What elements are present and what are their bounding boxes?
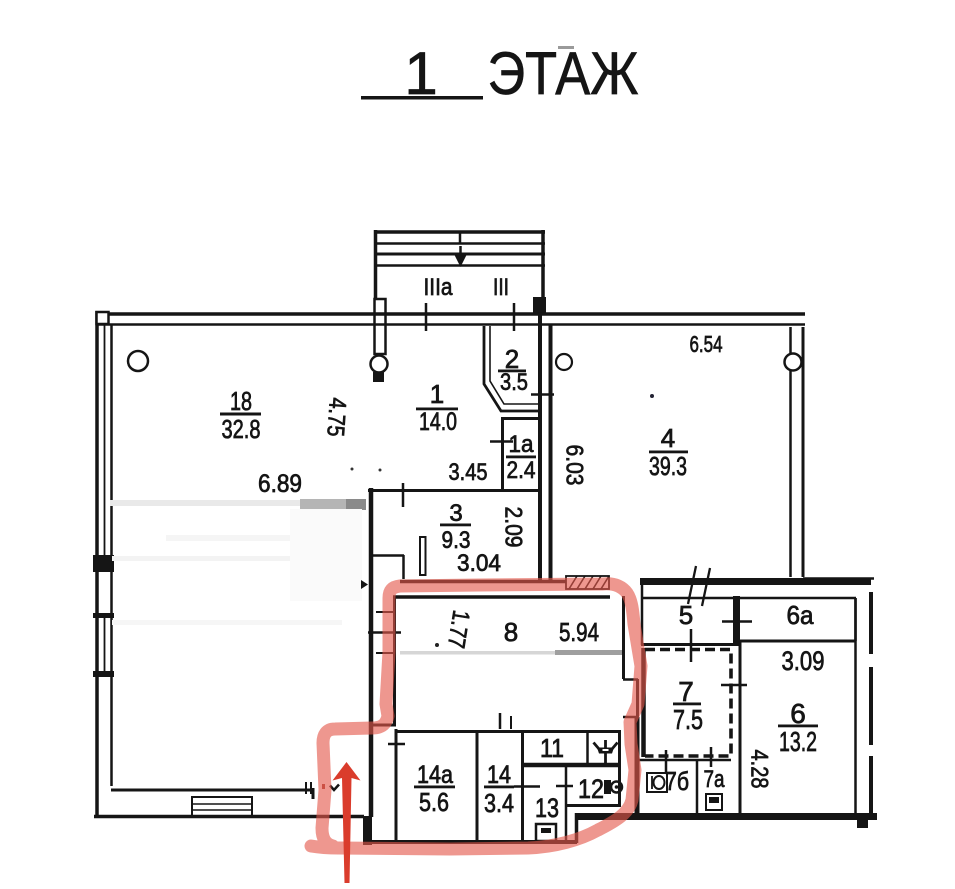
svg-text:IIIa: IIIa xyxy=(424,274,454,301)
svg-text:8: 8 xyxy=(504,617,518,647)
svg-text:7a: 7a xyxy=(704,766,726,793)
svg-text:4.28: 4.28 xyxy=(746,750,773,789)
svg-text:6.03: 6.03 xyxy=(561,445,588,486)
svg-text:6.54: 6.54 xyxy=(690,331,723,357)
svg-text:7.5: 7.5 xyxy=(673,704,703,735)
svg-text:13.2: 13.2 xyxy=(779,726,817,757)
svg-text:11: 11 xyxy=(540,733,564,763)
svg-text:3: 3 xyxy=(449,500,462,527)
svg-text:3.45: 3.45 xyxy=(449,459,488,486)
svg-text:6.89: 6.89 xyxy=(258,470,302,498)
svg-text:12: 12 xyxy=(578,774,604,804)
svg-text:13: 13 xyxy=(535,793,559,823)
svg-text:2.4: 2.4 xyxy=(507,457,536,484)
svg-text:III: III xyxy=(493,274,509,301)
svg-text:4.75: 4.75 xyxy=(321,397,351,438)
svg-text:3.09: 3.09 xyxy=(782,646,825,676)
svg-text:7б: 7б xyxy=(665,766,689,796)
svg-text:4: 4 xyxy=(661,423,675,453)
svg-text:7: 7 xyxy=(678,676,694,707)
svg-text:6: 6 xyxy=(790,698,806,729)
svg-text:39.3: 39.3 xyxy=(649,451,687,481)
svg-text:1a: 1a xyxy=(509,431,535,458)
svg-text:6a: 6a xyxy=(787,600,815,630)
svg-text:1: 1 xyxy=(430,379,444,409)
svg-text:3.5: 3.5 xyxy=(500,369,528,396)
svg-text:18: 18 xyxy=(230,386,252,416)
svg-text:14a: 14a xyxy=(417,761,453,789)
svg-text:14.0: 14.0 xyxy=(419,408,457,436)
svg-text:5.6: 5.6 xyxy=(419,787,449,817)
svg-text:5.94: 5.94 xyxy=(559,617,599,647)
svg-text:2.09: 2.09 xyxy=(500,507,527,548)
svg-text:3.04: 3.04 xyxy=(457,550,501,577)
svg-text:3.4: 3.4 xyxy=(484,788,514,818)
svg-text:5: 5 xyxy=(679,600,693,630)
svg-text:ЭТАЖ: ЭТАЖ xyxy=(488,40,639,107)
svg-text:32.8: 32.8 xyxy=(222,414,261,444)
svg-text:14: 14 xyxy=(487,761,511,789)
